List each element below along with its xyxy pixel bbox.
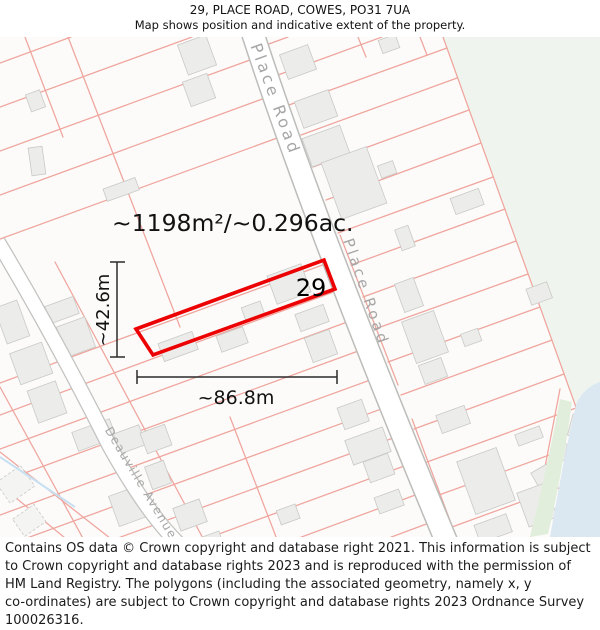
map-canvas: Place Road Place Road Deauville Avenue 2… [0,37,600,537]
area-label: ~1198m²/~0.296ac. [112,209,353,237]
page-title: 29, PLACE ROAD, COWES, PO31 7UA [0,3,600,18]
property-number-label: 29 [296,274,327,302]
footer-line: HM Land Registry. The polygons (includin… [5,576,600,594]
footer-attribution: Contains OS data © Crown copyright and d… [0,537,600,630]
footer-line: to Crown copyright and database rights 2… [5,558,600,576]
height-dimension-label: ~42.6m [93,274,114,347]
width-dimension-label: ~86.8m [198,387,275,409]
property-map-report: 29, PLACE ROAD, COWES, PO31 7UA Map show… [0,0,600,625]
footer-line: co-ordinates) are subject to Crown copyr… [5,594,600,612]
footer-line: 100026316. [5,612,600,630]
page-subtitle: Map shows position and indicative extent… [0,18,600,33]
map: Place Road Place Road Deauville Avenue 2… [0,37,600,537]
footer-line: Contains OS data © Crown copyright and d… [5,540,600,558]
header: 29, PLACE ROAD, COWES, PO31 7UA Map show… [0,0,600,37]
